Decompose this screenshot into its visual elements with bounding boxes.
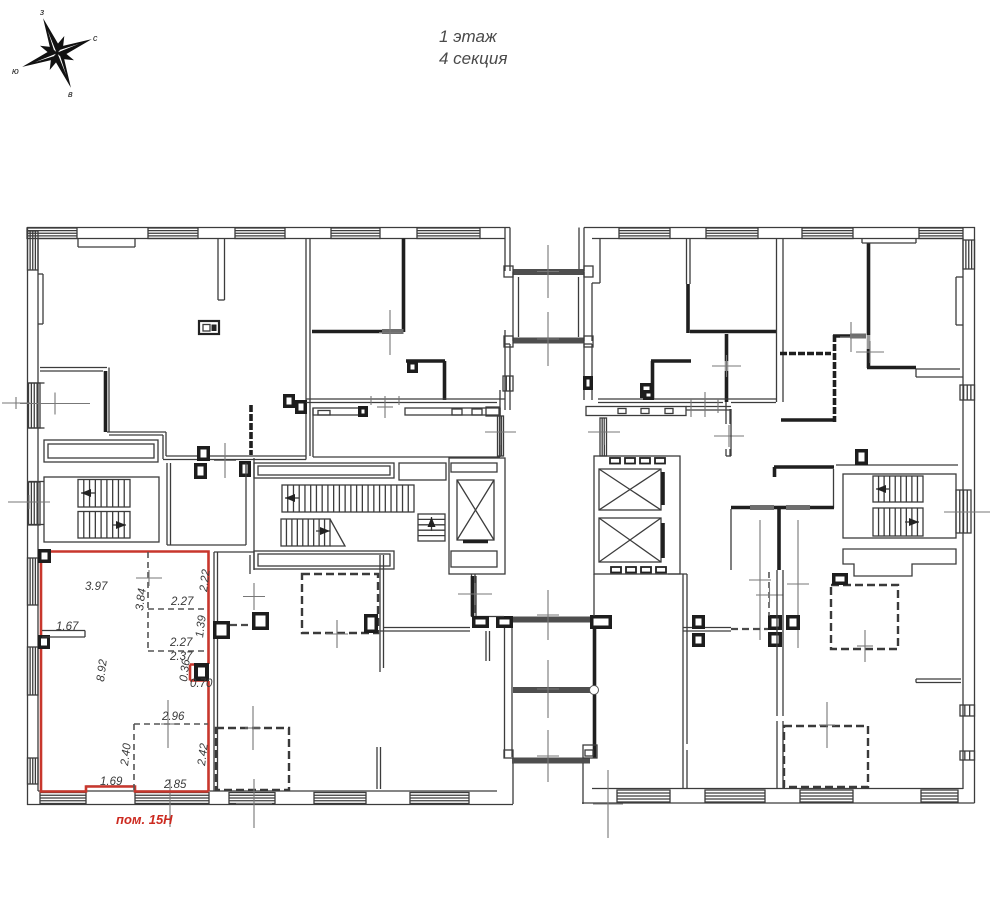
svg-text:8.92: 8.92	[95, 658, 110, 682]
svg-text:3.84: 3.84	[134, 588, 149, 612]
svg-text:2.27: 2.27	[169, 637, 193, 649]
svg-text:0.70: 0.70	[190, 678, 213, 690]
svg-text:2.85: 2.85	[163, 779, 187, 791]
svg-text:2.96: 2.96	[161, 711, 185, 723]
svg-text:в: в	[68, 89, 73, 99]
svg-text:1.39: 1.39	[194, 614, 209, 638]
svg-text:3.97: 3.97	[85, 581, 108, 593]
svg-text:4 секция: 4 секция	[439, 49, 507, 68]
svg-text:с: с	[93, 33, 98, 43]
svg-text:1.67: 1.67	[56, 621, 79, 633]
svg-text:1.69: 1.69	[100, 776, 123, 788]
svg-text:2.27: 2.27	[170, 596, 194, 608]
svg-text:2.22: 2.22	[198, 568, 213, 593]
svg-text:1 этаж: 1 этаж	[439, 27, 498, 46]
svg-text:ю: ю	[12, 66, 19, 76]
svg-text:з: з	[39, 7, 44, 17]
svg-text:пом. 15Н: пом. 15Н	[116, 812, 173, 827]
svg-text:2.40: 2.40	[119, 742, 134, 767]
